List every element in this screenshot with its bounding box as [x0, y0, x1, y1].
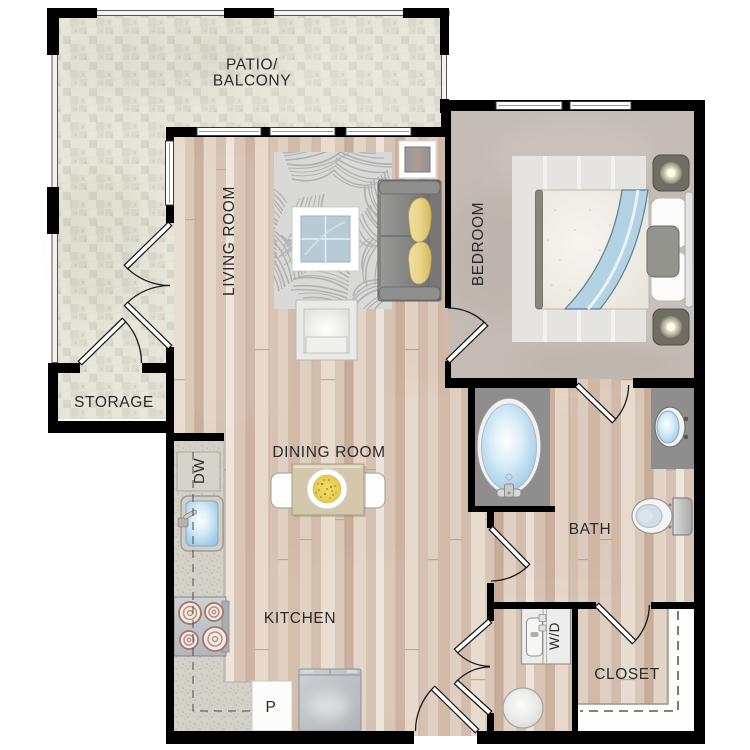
svg-text:BATH: BATH [569, 521, 612, 538]
svg-text:LIVING ROOM: LIVING ROOM [221, 186, 238, 296]
svg-text:PATIO/: PATIO/ [226, 57, 278, 74]
svg-text:W/D: W/D [547, 622, 562, 650]
svg-text:CLOSET: CLOSET [594, 666, 660, 683]
svg-text:DW: DW [191, 458, 208, 484]
svg-text:KITCHEN: KITCHEN [264, 610, 336, 627]
svg-text:STORAGE: STORAGE [74, 394, 154, 411]
svg-text:DINING ROOM: DINING ROOM [272, 444, 385, 461]
svg-text:P: P [266, 699, 277, 716]
svg-text:BALCONY: BALCONY [213, 73, 291, 90]
svg-text:BEDROOM: BEDROOM [470, 202, 487, 286]
